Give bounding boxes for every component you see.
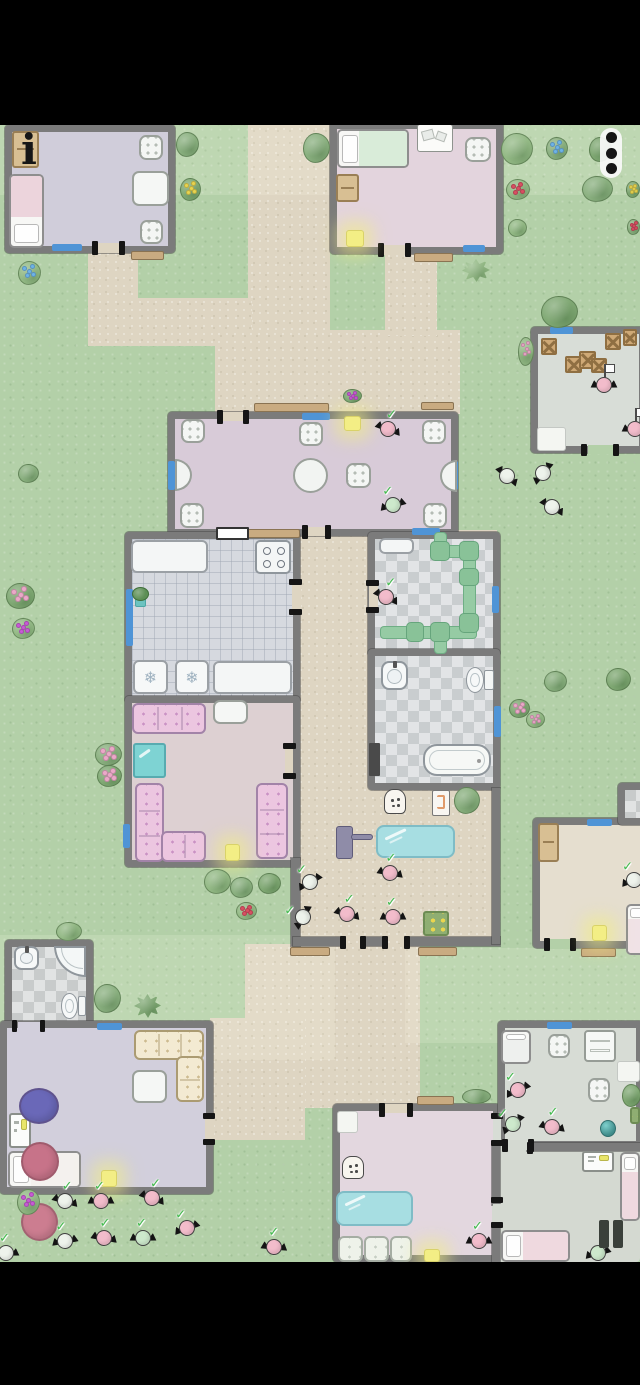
menu-dot	[606, 148, 617, 159]
door-opening	[205, 1119, 214, 1139]
bed-blanket	[11, 176, 42, 217]
flower	[511, 184, 516, 189]
bush	[95, 743, 122, 766]
bed-pillow	[506, 1034, 527, 1040]
table	[132, 1070, 167, 1103]
sink	[14, 946, 39, 970]
sofa	[176, 1056, 204, 1102]
door-post	[544, 938, 550, 951]
letterbox-top	[0, 0, 640, 125]
bread-dot	[355, 1170, 358, 1173]
door-post	[302, 525, 308, 539]
door-opening	[285, 749, 293, 773]
bird[interactable]: ✓	[56, 1232, 75, 1251]
sink-tap	[25, 946, 29, 953]
door-post	[366, 607, 379, 613]
flower	[30, 1201, 35, 1206]
armchair-pouf	[465, 137, 491, 162]
dresser	[538, 823, 559, 862]
door-post	[491, 1197, 503, 1203]
window	[302, 413, 330, 420]
bird[interactable]: ✓	[95, 1229, 114, 1248]
bird[interactable]: ✓	[381, 864, 400, 883]
bird-body	[543, 1118, 562, 1137]
sofa-seam	[158, 1034, 160, 1056]
door-opening	[385, 1104, 407, 1113]
door-post	[491, 1222, 503, 1228]
sofa	[390, 1236, 412, 1262]
pump-handle	[351, 834, 373, 840]
window	[168, 461, 175, 490]
check-icon: ✓	[296, 863, 307, 878]
stove-burner	[277, 547, 285, 555]
bench	[290, 947, 330, 956]
window	[123, 824, 130, 848]
pipe-joint	[459, 541, 479, 561]
door-opening	[97, 243, 119, 253]
bird[interactable]	[496, 465, 519, 488]
sofa-seam	[139, 810, 160, 812]
crate	[623, 329, 637, 346]
bush	[236, 902, 257, 920]
bush	[18, 464, 39, 483]
door-post	[378, 243, 384, 257]
floor-light	[346, 230, 364, 247]
pause-bar	[599, 1220, 609, 1248]
door-post	[382, 936, 388, 949]
dresser-line	[341, 187, 354, 189]
bird-body	[385, 909, 401, 925]
bird[interactable]	[596, 377, 612, 393]
flower	[525, 347, 529, 351]
check-icon: ✓	[622, 859, 633, 874]
bird[interactable]: ✓	[265, 1238, 282, 1255]
bed	[620, 1152, 640, 1221]
wall-vent	[216, 527, 249, 540]
flower	[18, 592, 24, 598]
bush	[506, 179, 530, 200]
door-post	[527, 1142, 533, 1154]
wall	[527, 1143, 640, 1151]
room-corner-room-e	[618, 783, 640, 825]
bird[interactable]	[541, 496, 563, 518]
check-icon: ✓	[62, 1179, 73, 1194]
flower	[25, 273, 30, 278]
open-door	[369, 743, 380, 776]
door-opening	[18, 1022, 40, 1031]
bed-blanket	[628, 919, 640, 953]
path	[385, 252, 437, 336]
window	[97, 1023, 122, 1030]
bush	[18, 261, 41, 285]
sofa-seam	[180, 1034, 182, 1056]
check-icon: ✓	[268, 1225, 279, 1240]
armchair-pouf	[140, 220, 163, 244]
crate	[605, 333, 621, 350]
flower	[106, 751, 112, 757]
bed	[501, 1030, 531, 1064]
flower	[527, 350, 531, 354]
bird-body	[596, 377, 612, 393]
bird-body	[265, 1238, 282, 1255]
menu-dot	[606, 132, 617, 143]
bench	[581, 948, 616, 957]
bed-pillow	[342, 135, 358, 163]
door-post	[570, 938, 576, 951]
round-table	[293, 458, 328, 493]
check-icon: ✓	[382, 484, 393, 499]
check-icon: ✓	[505, 1070, 516, 1085]
flag-icon	[604, 364, 615, 373]
bird-body	[381, 864, 400, 883]
armchair-pouf	[139, 135, 163, 160]
door-post	[379, 1103, 385, 1117]
sink-basin	[20, 952, 33, 964]
door-post	[12, 1020, 17, 1032]
bird-body	[627, 421, 640, 437]
cabinet-line	[590, 1049, 610, 1052]
check-icon: ✓	[175, 1207, 186, 1222]
bird-body	[93, 1193, 109, 1209]
bird[interactable]: ✓	[177, 1218, 198, 1239]
spiky-bush	[462, 259, 490, 282]
flower	[555, 145, 560, 150]
bed-blanket	[359, 131, 407, 166]
plant-leaves	[132, 587, 149, 601]
bread-dot	[355, 1164, 358, 1167]
game-screen: ❄❄✓✓✓✓✓✓✓✓✓✓✓✓✓✓✓✓✓✓✓✓✓✓ i	[0, 0, 640, 1385]
wall	[293, 937, 345, 946]
toilet-tank	[78, 996, 87, 1016]
bench	[131, 251, 164, 260]
bench	[254, 403, 329, 412]
bird[interactable]: ✓	[385, 909, 401, 925]
counter	[379, 538, 414, 554]
bread-dot	[397, 804, 400, 807]
bird-body	[95, 1229, 114, 1248]
bench	[417, 1096, 454, 1105]
flower	[534, 717, 538, 721]
desk-with-papers	[417, 125, 453, 152]
flower	[189, 186, 194, 191]
potted-plant	[132, 587, 149, 607]
floor-light	[592, 925, 607, 941]
cabinet-line	[590, 1040, 610, 1042]
bed-pillow	[624, 1157, 637, 1170]
armchair-pouf	[423, 503, 447, 528]
wall-sign	[432, 790, 450, 816]
toilet-bowl-inner	[470, 673, 480, 687]
check-icon: ✓	[386, 851, 397, 866]
toilet-tank	[484, 670, 494, 690]
water-pool	[336, 1191, 413, 1226]
window	[550, 327, 573, 334]
bush	[258, 873, 281, 894]
flower	[245, 908, 250, 913]
sofa-seam	[260, 833, 284, 835]
bathtub	[423, 744, 491, 776]
window	[494, 706, 501, 737]
check-icon: ✓	[56, 1219, 67, 1234]
check-icon: ✓	[386, 895, 397, 910]
pipe-joint	[430, 622, 450, 642]
white-rug	[617, 1061, 640, 1082]
flower	[29, 1192, 34, 1197]
sofa-seam	[139, 835, 160, 837]
bed-blanket	[503, 1040, 529, 1062]
bed-pillow	[506, 1235, 522, 1257]
flag-pole	[604, 365, 606, 378]
door-post	[283, 773, 296, 779]
armchair-pouf	[346, 463, 371, 488]
door-opening	[223, 412, 243, 421]
bench	[421, 402, 454, 410]
machine-slot	[588, 1156, 596, 1158]
sofa	[364, 1236, 389, 1262]
menu-dots-button[interactable]	[600, 128, 622, 178]
door-opening	[384, 245, 405, 255]
menu-dot	[606, 163, 617, 174]
bird-body	[55, 1191, 75, 1211]
floor-light	[344, 416, 361, 431]
freezer: ❄	[133, 660, 168, 694]
crate	[541, 338, 557, 355]
bird[interactable]: ✓	[0, 1245, 14, 1261]
bush	[526, 711, 545, 728]
toilet-bowl-inner	[65, 999, 74, 1013]
flower	[24, 1202, 29, 1207]
stove	[255, 540, 291, 574]
bed	[501, 1230, 570, 1262]
table-shine	[139, 748, 151, 758]
sofa	[338, 1236, 363, 1262]
bed-pillow	[14, 224, 39, 242]
bench	[414, 253, 453, 262]
bird-body	[135, 1230, 151, 1246]
table	[213, 700, 248, 724]
bush	[462, 1089, 491, 1104]
bush	[6, 583, 35, 609]
door-post	[360, 936, 366, 949]
shower-inner	[61, 948, 83, 969]
cabinet	[584, 1030, 616, 1062]
machine-panel	[599, 1155, 609, 1161]
door-post	[340, 936, 346, 949]
window	[52, 244, 82, 251]
bird-body	[56, 1232, 75, 1251]
bread-dot	[391, 799, 394, 802]
door-post	[613, 444, 619, 456]
armchair-pouf	[422, 420, 446, 444]
check-icon: ✓	[100, 1216, 111, 1231]
bread-dot	[397, 798, 400, 801]
door-post	[407, 1103, 413, 1117]
bush	[627, 219, 640, 235]
door-post	[289, 579, 302, 585]
bird[interactable]: ✓	[135, 1230, 151, 1246]
bird[interactable]	[627, 421, 640, 437]
info-button[interactable]: i	[14, 128, 44, 174]
door-post	[502, 1139, 508, 1152]
flower	[632, 187, 636, 191]
bush	[508, 219, 527, 237]
bird-body	[0, 1245, 14, 1261]
armchair-pouf	[299, 422, 323, 446]
flower	[11, 589, 17, 595]
flag-pole	[635, 409, 637, 422]
toilet	[61, 993, 86, 1019]
floor-light	[424, 1249, 440, 1262]
pause-button[interactable]	[597, 1218, 627, 1250]
check-icon: ✓	[497, 1106, 508, 1121]
sink	[381, 661, 408, 690]
door-post	[203, 1139, 215, 1145]
bed-pillow	[630, 908, 640, 917]
counter	[131, 540, 208, 573]
wall	[492, 1143, 500, 1205]
door-post	[325, 525, 331, 539]
paper	[434, 131, 447, 143]
freezer: ❄	[175, 660, 209, 694]
bird[interactable]: ✓	[142, 1188, 163, 1209]
check-icon: ✓	[472, 1219, 483, 1234]
armchair-pouf	[180, 503, 204, 528]
door-post	[40, 1020, 45, 1032]
bread-dot	[349, 1165, 352, 1168]
dresser	[336, 174, 359, 202]
pause-bar	[613, 1220, 623, 1248]
check-icon: ✓	[136, 1216, 147, 1231]
door-post	[366, 580, 379, 586]
wall	[408, 937, 500, 946]
door-opening	[493, 1204, 501, 1222]
door-opening	[308, 527, 325, 536]
bush	[544, 671, 567, 692]
armchair-pouf	[181, 419, 205, 443]
bush	[606, 668, 631, 691]
pipe-joint	[459, 568, 479, 586]
door-opening	[588, 445, 613, 454]
sofa	[161, 831, 206, 862]
flower-bed	[423, 911, 449, 936]
large-bird[interactable]	[21, 1142, 59, 1181]
door-post	[405, 243, 411, 257]
table	[132, 171, 169, 206]
machine-panel	[21, 1119, 27, 1130]
sofa-seam	[184, 835, 186, 858]
check-icon: ✓	[344, 892, 355, 907]
armchair-pouf	[548, 1034, 570, 1058]
teal-table	[133, 743, 166, 778]
machine	[582, 1151, 614, 1172]
sofa-seam	[157, 707, 159, 730]
letterbox-bottom	[0, 1262, 640, 1385]
bird[interactable]	[532, 462, 555, 485]
bed-blanket	[622, 1172, 638, 1219]
sign-mark	[437, 795, 446, 808]
window	[587, 819, 612, 826]
door-post	[404, 936, 410, 949]
sofa-seam	[260, 809, 284, 811]
floor-light	[225, 844, 240, 861]
counter	[213, 661, 292, 694]
bread-dot	[350, 1171, 353, 1174]
door-post	[92, 241, 98, 255]
bench	[418, 947, 457, 956]
door-post	[581, 444, 587, 456]
check-icon: ✓	[94, 1179, 105, 1194]
machine-slot	[14, 1129, 18, 1132]
sink-basin	[387, 669, 402, 684]
machine-slot	[14, 1121, 19, 1124]
machine-slot	[588, 1160, 594, 1162]
globe-toy	[600, 1120, 616, 1137]
check-icon: ✓	[385, 576, 396, 591]
sofa	[135, 783, 164, 862]
door-opening	[508, 1140, 528, 1150]
bed	[626, 904, 640, 955]
flower-bed	[630, 1107, 640, 1124]
stove-burner	[263, 547, 271, 555]
bush	[626, 181, 640, 198]
check-icon: ✓	[548, 1105, 559, 1120]
sofa	[256, 783, 288, 859]
water-pump	[336, 826, 353, 859]
door-opening	[292, 585, 301, 609]
door-post	[217, 410, 223, 424]
flower	[25, 628, 30, 633]
stove-burner	[277, 560, 285, 568]
bush	[180, 178, 201, 201]
white-rug	[337, 1111, 358, 1133]
bush	[582, 176, 613, 202]
bread-dot	[392, 805, 395, 808]
wall	[492, 1224, 500, 1262]
door-post	[243, 410, 249, 424]
pool-shine	[348, 1203, 361, 1210]
dresser-line	[543, 841, 555, 843]
paper	[421, 129, 435, 142]
flower	[351, 394, 355, 398]
bird[interactable]: ✓	[543, 1118, 562, 1137]
bread-feeder	[342, 1156, 364, 1179]
bird[interactable]: ✓	[471, 1233, 487, 1249]
bush	[230, 877, 253, 898]
bed	[337, 129, 409, 168]
sofa-seam	[180, 1079, 200, 1081]
sofa	[132, 703, 206, 734]
door-post	[289, 609, 302, 615]
bird-body	[471, 1233, 487, 1249]
window	[547, 1022, 572, 1029]
armchair-pouf	[588, 1078, 610, 1102]
bread-feeder	[384, 789, 406, 814]
large-bird[interactable]	[19, 1088, 59, 1124]
bush	[622, 1084, 640, 1107]
bird[interactable]: ✓	[93, 1193, 109, 1209]
flower	[516, 186, 521, 191]
toilet-bowl	[61, 993, 78, 1019]
stove-burner	[263, 560, 271, 568]
sink-tap	[393, 661, 397, 668]
window	[492, 586, 499, 613]
check-icon: ✓	[284, 904, 295, 919]
door-post	[203, 1113, 215, 1119]
bird[interactable]: ✓	[55, 1191, 75, 1211]
toilet	[466, 667, 494, 693]
check-icon: ✓	[150, 1176, 161, 1191]
check-icon: ✓	[0, 1231, 10, 1246]
